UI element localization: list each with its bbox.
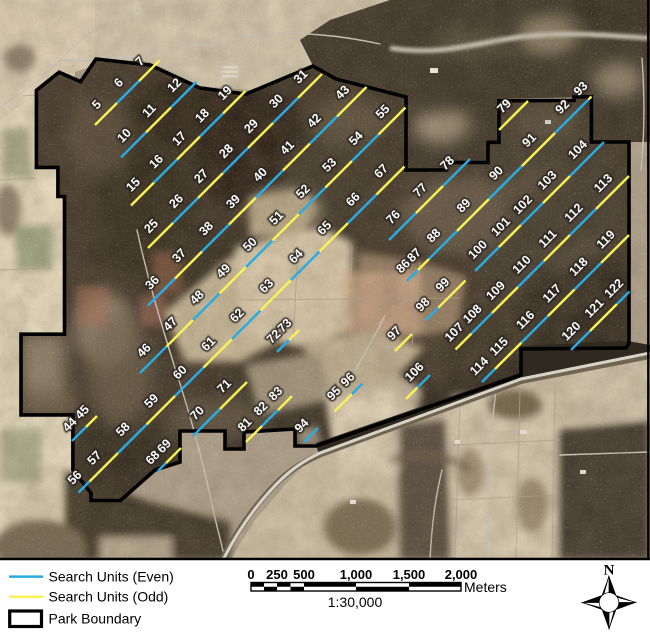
svg-text:Park Boundary: Park Boundary (49, 611, 142, 627)
svg-text:0: 0 (247, 567, 254, 582)
svg-text:1,000: 1,000 (340, 567, 373, 582)
svg-text:Search Units (Even): Search Units (Even) (49, 569, 174, 585)
svg-text:1,500: 1,500 (393, 567, 426, 582)
svg-text:500: 500 (293, 567, 315, 582)
svg-text:Search Units (Odd): Search Units (Odd) (49, 589, 169, 605)
svg-text:250: 250 (266, 567, 288, 582)
svg-text:Meters: Meters (464, 579, 507, 595)
svg-text:1:30,000: 1:30,000 (328, 594, 383, 610)
